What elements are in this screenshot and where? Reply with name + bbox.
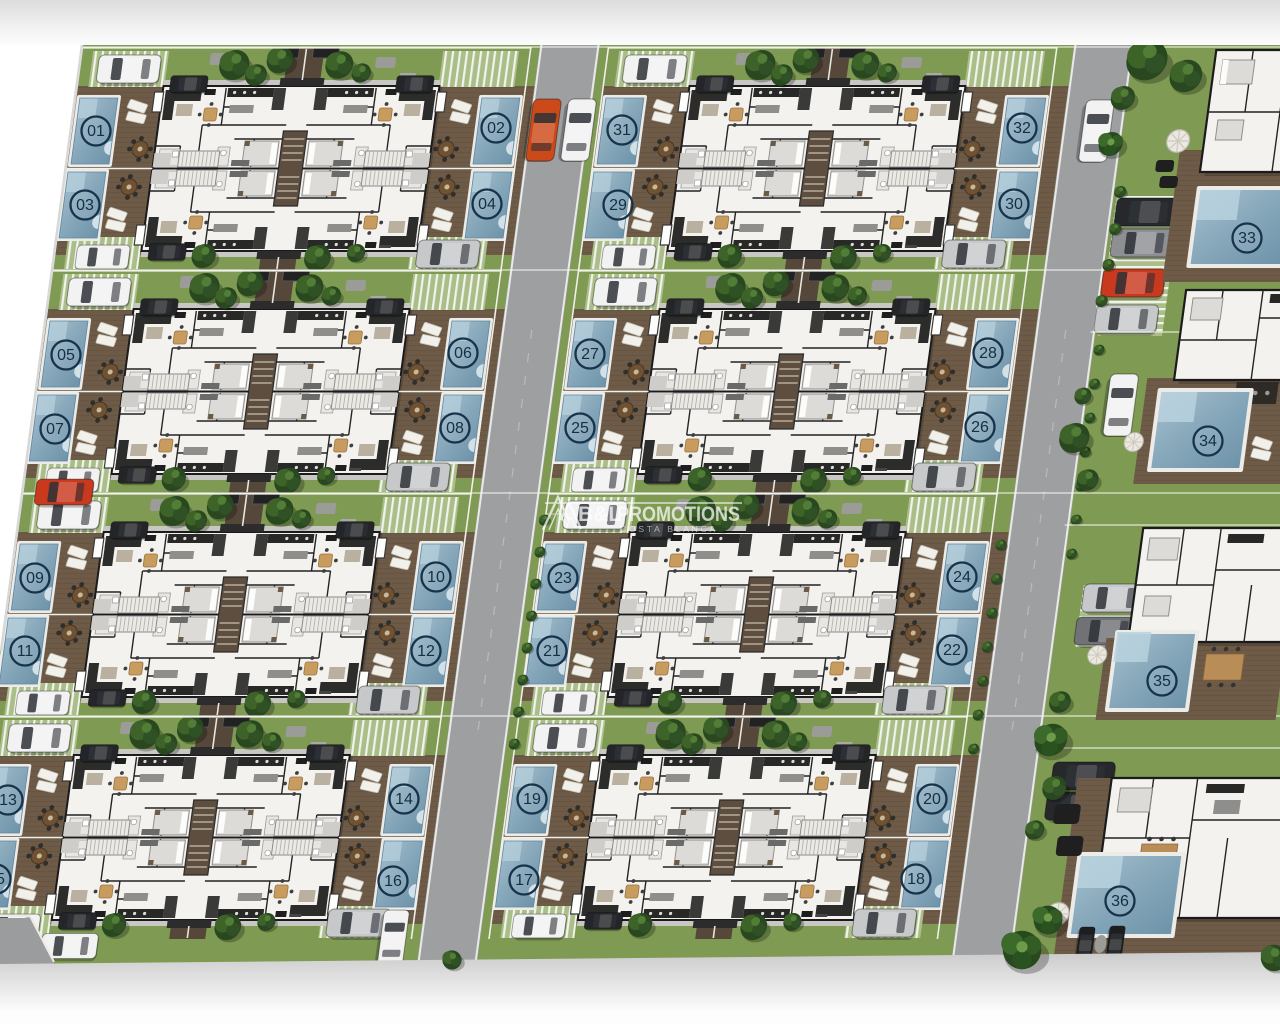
svg-text:COSTA BLANCA: COSTA BLANCA xyxy=(620,525,718,534)
svg-text:11: 11 xyxy=(17,643,34,660)
svg-text:04: 04 xyxy=(478,196,496,213)
svg-text:35: 35 xyxy=(1153,673,1171,690)
svg-text:31: 31 xyxy=(613,122,631,139)
svg-text:30: 30 xyxy=(1005,196,1023,213)
svg-text:16: 16 xyxy=(384,873,402,890)
svg-text:B&L: B&L xyxy=(578,503,621,526)
svg-text:29: 29 xyxy=(609,197,627,214)
svg-text:25: 25 xyxy=(571,420,589,437)
svg-text:02: 02 xyxy=(487,120,505,137)
svg-text:26: 26 xyxy=(971,419,989,436)
svg-text:21: 21 xyxy=(543,643,561,660)
svg-text:27: 27 xyxy=(581,346,599,363)
svg-text:33: 33 xyxy=(1238,230,1256,247)
svg-text:06: 06 xyxy=(454,345,472,362)
svg-text:28: 28 xyxy=(979,345,997,362)
svg-text:10: 10 xyxy=(427,569,445,586)
svg-text:24: 24 xyxy=(953,569,971,586)
svg-text:08: 08 xyxy=(446,420,464,437)
svg-text:19: 19 xyxy=(523,791,541,808)
svg-text:14: 14 xyxy=(395,791,413,808)
svg-text:13: 13 xyxy=(0,792,17,809)
svg-text:32: 32 xyxy=(1013,120,1031,137)
svg-text:18: 18 xyxy=(907,871,925,888)
svg-text:22: 22 xyxy=(943,642,961,659)
svg-text:05: 05 xyxy=(57,347,75,364)
svg-text:09: 09 xyxy=(26,570,44,587)
svg-text:20: 20 xyxy=(923,791,941,808)
svg-text:12: 12 xyxy=(417,643,435,660)
svg-text:01: 01 xyxy=(87,123,105,140)
svg-text:15: 15 xyxy=(0,871,5,888)
svg-text:34: 34 xyxy=(1199,433,1217,450)
svg-text:36: 36 xyxy=(1111,893,1129,910)
svg-text:07: 07 xyxy=(46,421,64,438)
svg-text:03: 03 xyxy=(76,197,94,214)
svg-text:23: 23 xyxy=(554,570,572,587)
svg-text:17: 17 xyxy=(515,872,533,889)
svg-text:PROMOTIONS: PROMOTIONS xyxy=(617,503,740,526)
